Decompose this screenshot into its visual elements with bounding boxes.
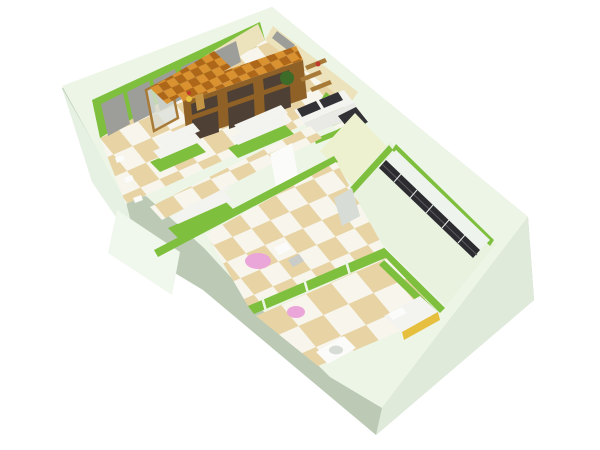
toy-figure: [186, 96, 192, 102]
sink-basin: [329, 346, 343, 355]
flower-accent: [316, 62, 321, 67]
floorplan-render: [0, 0, 600, 450]
floorplan-svg: [0, 0, 600, 450]
toy-figure-head: [187, 91, 191, 95]
pink-round-table: [245, 253, 271, 269]
pink-stool: [287, 306, 305, 318]
potted-plant: [280, 71, 294, 85]
